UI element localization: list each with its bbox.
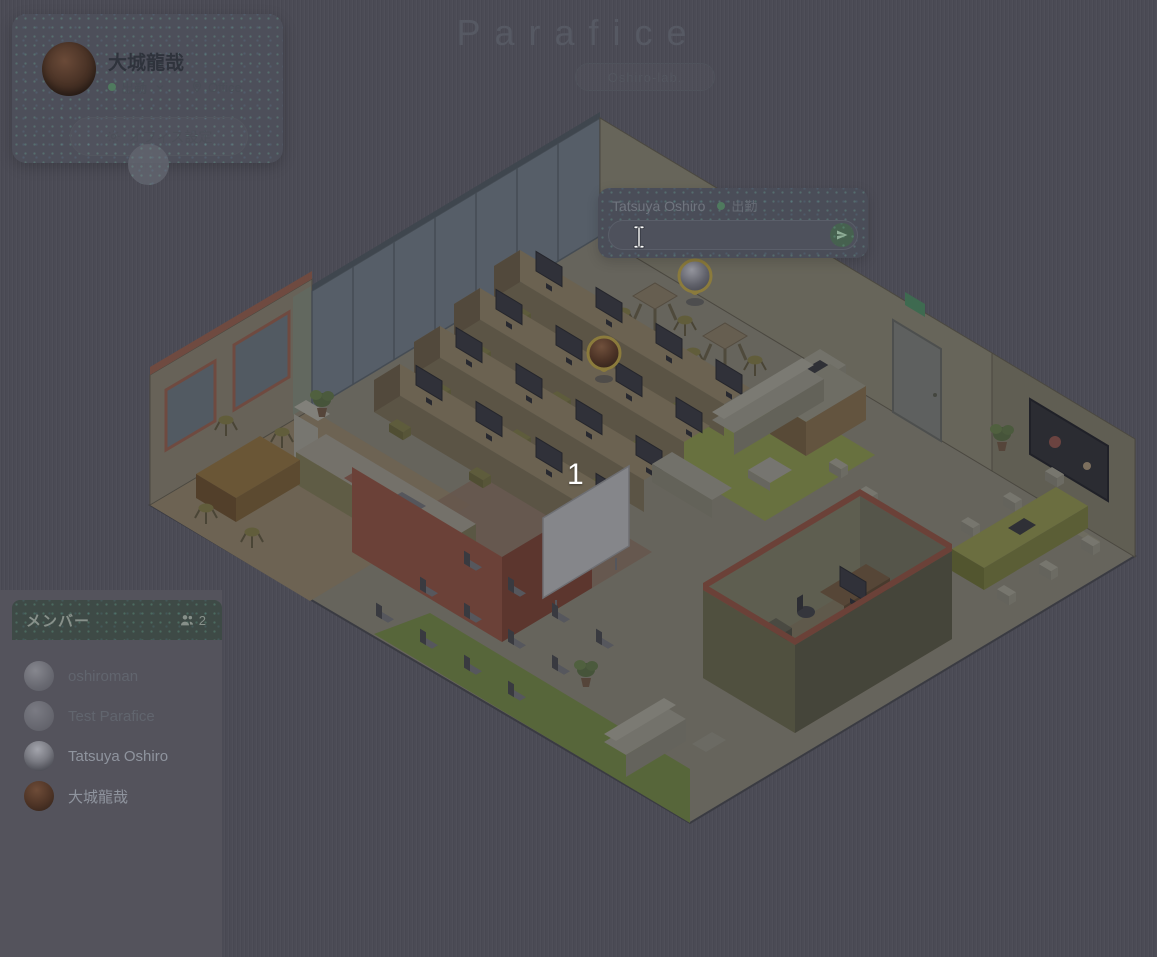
- status-dot-icon: [108, 83, 116, 91]
- member-avatar: [24, 781, 54, 811]
- page: { "app": { "logo": "Parafice", "workspac…: [0, 0, 1157, 957]
- status-dropdown[interactable]: 出勤: [108, 78, 172, 97]
- location-label: Office: [208, 80, 242, 95]
- user-name: 大城龍哉: [108, 48, 184, 75]
- send-button[interactable]: [830, 223, 854, 247]
- send-icon: [836, 229, 848, 241]
- status-label: 出勤: [121, 78, 147, 97]
- dialog-status-label: 出勤: [731, 196, 757, 215]
- gear-icon: [106, 129, 121, 144]
- online-count: 2: [199, 613, 206, 628]
- member-panel: メンバー 2 oshiroman Test Parafice Tatsuya O…: [0, 590, 222, 957]
- user-avatar: [42, 42, 96, 96]
- member-avatar: [24, 701, 54, 731]
- people-icon: [179, 613, 195, 627]
- member-panel-header: メンバー 2: [12, 600, 222, 640]
- member-row[interactable]: Tatsuya Oshiro: [8, 736, 214, 776]
- member-row[interactable]: oshiroman: [8, 656, 214, 696]
- member-avatar: [24, 661, 54, 691]
- map-annotation: 1: [567, 458, 584, 492]
- member-row[interactable]: Test Parafice: [8, 696, 214, 736]
- member-row[interactable]: 大城龍哉: [8, 776, 214, 816]
- text-cursor: [632, 225, 646, 254]
- dialog-user-name: Tatsuya Oshiro: [612, 198, 705, 214]
- workspace-button[interactable]: Oshiro-lab.: [575, 63, 715, 91]
- chevron-down-icon: [154, 81, 166, 93]
- member-list: oshiroman Test Parafice Tatsuya Oshiro 大…: [8, 656, 214, 816]
- message-input[interactable]: [623, 223, 817, 249]
- member-panel-title: メンバー: [26, 610, 90, 631]
- dialog-status-dot-icon: [717, 202, 725, 210]
- member-avatar: [24, 741, 54, 771]
- user-card: 大城龍哉 出勤 Office オフィス設定: [12, 14, 283, 163]
- floating-avatar: [128, 144, 169, 185]
- location-pin-icon: [191, 80, 203, 94]
